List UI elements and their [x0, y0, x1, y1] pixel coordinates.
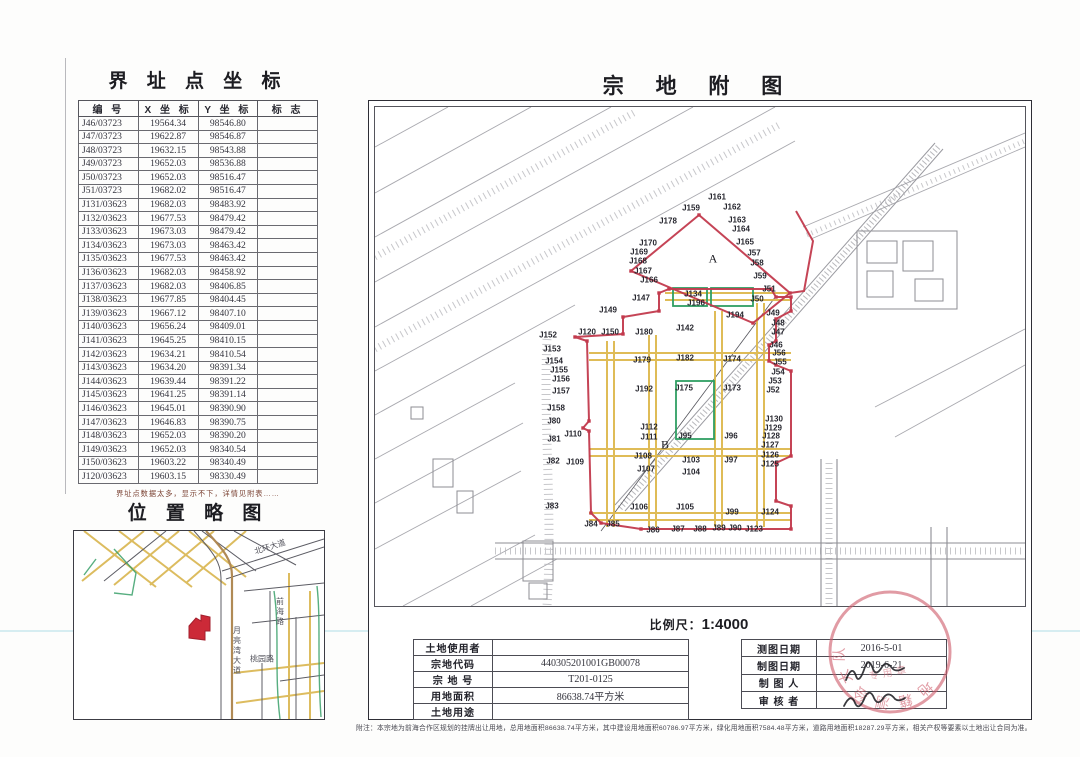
map-point-label: J80: [547, 417, 560, 426]
x-coord-cell: 19682.03: [138, 266, 198, 280]
y-coord-cell: 98536.88: [198, 157, 258, 171]
map-point-label: J84: [584, 520, 597, 529]
map-point-label: J55: [773, 358, 786, 367]
point-id-cell: J120/03623: [79, 470, 139, 484]
info-label: 宗 地 号: [414, 672, 493, 688]
coord-table-header-cell: Y 坐 标: [198, 101, 258, 117]
point-id-cell: J131/03623: [79, 198, 139, 212]
mark-cell: [258, 157, 318, 171]
map-point-label: J159: [682, 204, 700, 213]
map-point-label: J125: [761, 460, 779, 469]
point-id-cell: J132/03623: [79, 212, 139, 226]
table-row: J132/03623 19677.53 98479.42: [79, 212, 318, 226]
map-point-label: J53: [768, 377, 781, 386]
map-point-label: J49: [766, 309, 779, 318]
mark-cell: [258, 117, 318, 131]
meta-label: 制图日期: [742, 657, 817, 674]
scale-value: 1:4000: [702, 616, 749, 633]
y-coord-cell: 98390.90: [198, 402, 258, 416]
map-point-label: J85: [606, 520, 619, 529]
map-point-label: J153: [543, 345, 561, 354]
map-point-label: J81: [547, 435, 560, 444]
point-id-cell: J137/03623: [79, 280, 139, 294]
point-id-cell: J140/03623: [79, 320, 139, 334]
meta-value: 2019-6-21: [817, 657, 947, 674]
mark-cell: [258, 184, 318, 198]
table-row: J145/03623 19641.25 98391.14: [79, 388, 318, 402]
point-id-cell: J146/03623: [79, 402, 139, 416]
point-id-cell: J135/03623: [79, 252, 139, 266]
map-point-label: J50: [750, 295, 763, 304]
map-point-label: J106: [630, 503, 648, 512]
parcel-location-marker: [189, 615, 210, 640]
point-id-cell: J48/03723: [79, 144, 139, 158]
info-label: 土地使用者: [414, 640, 493, 656]
document-footnote: 附注：本宗地为前海合作区规划的挂牌出让用地，总用地面积86638.74平方米，其…: [356, 722, 1034, 732]
table-row: J47/03723 19622.87 98546.87: [79, 130, 318, 144]
y-coord-cell: 98483.92: [198, 198, 258, 212]
table-row: J147/03623 19646.83 98390.75: [79, 416, 318, 430]
parcel-map-frame: J159J161J162J163J164J165J57J58J59J51J50J…: [368, 100, 1032, 720]
table-row: 土地使用者: [414, 640, 689, 656]
point-id-cell: J147/03623: [79, 416, 139, 430]
map-point-label: J108: [634, 452, 652, 461]
table-row: J49/03723 19652.03 98536.88: [79, 157, 318, 171]
x-coord-cell: 19656.24: [138, 320, 198, 334]
road-label: 前海路: [275, 597, 286, 627]
map-point-label: J95: [678, 432, 691, 441]
y-coord-cell: 98410.15: [198, 334, 258, 348]
map-point-label: J83: [545, 502, 558, 511]
meta-label: 测图日期: [742, 640, 817, 657]
y-coord-cell: 98543.88: [198, 144, 258, 158]
y-coord-cell: 98404.45: [198, 293, 258, 307]
map-point-label: J173: [723, 384, 741, 393]
point-id-cell: J141/03623: [79, 334, 139, 348]
table-row: J141/03623 19645.25 98410.15: [79, 334, 318, 348]
map-point-label: J47: [771, 328, 784, 337]
table-row: J137/03623 19682.03 98406.85: [79, 280, 318, 294]
map-point-label: J54: [771, 368, 784, 377]
x-coord-cell: 19652.03: [138, 171, 198, 185]
table-row: J46/03723 19564.34 98546.80: [79, 117, 318, 131]
map-point-label: J179: [633, 356, 651, 365]
location-map-title: 位 置 略 图: [63, 498, 333, 525]
point-id-cell: J51/03723: [79, 184, 139, 198]
table-row: J131/03623 19682.03 98483.92: [79, 198, 318, 212]
mark-cell: [258, 307, 318, 321]
y-coord-cell: 98546.80: [198, 117, 258, 131]
mark-cell: [258, 443, 318, 457]
info-value: 440305201001GB00078: [493, 656, 689, 672]
map-point-label: J169: [630, 248, 648, 257]
mark-cell: [258, 198, 318, 212]
table-row: 宗 地 号 T201-0125: [414, 672, 689, 688]
map-point-label: J127: [761, 441, 779, 450]
table-row: J150/03623 19603.22 98340.49: [79, 456, 318, 470]
map-point-label: J96: [724, 432, 737, 441]
map-point-label: J82: [546, 457, 559, 466]
scan-page-edge: [65, 58, 66, 494]
mark-cell: [258, 375, 318, 389]
table-row: J143/03623 19634.20 98391.34: [79, 361, 318, 375]
map-point-label: J52: [766, 386, 779, 395]
x-coord-cell: 19634.21: [138, 348, 198, 362]
parcel-map-canvas: J159J161J162J163J164J165J57J58J59J51J50J…: [374, 106, 1026, 607]
map-point-label: J110: [564, 430, 581, 439]
point-id-cell: J150/03623: [79, 456, 139, 470]
x-coord-cell: 19564.34: [138, 117, 198, 131]
table-row: J134/03623 19673.03 98463.42: [79, 239, 318, 253]
y-coord-cell: 98340.49: [198, 456, 258, 470]
table-row: 测图日期 2016-5-01: [742, 640, 947, 657]
map-point-label: J86: [646, 526, 659, 535]
x-coord-cell: 19645.25: [138, 334, 198, 348]
map-point-label: J87: [671, 525, 684, 534]
map-point-label: A: [709, 252, 718, 267]
map-point-label: J192: [635, 385, 653, 394]
coord-table-title: 界 址 点 坐 标: [63, 66, 333, 93]
mark-cell: [258, 280, 318, 294]
table-row: J48/03723 19632.15 98543.88: [79, 144, 318, 158]
table-row: J140/03623 19656.24 98409.01: [79, 320, 318, 334]
table-row: J135/03623 19677.53 98463.42: [79, 252, 318, 266]
map-point-label: J175: [675, 384, 693, 393]
map-point-label: J59: [753, 272, 766, 281]
map-point-label: J130: [765, 415, 783, 424]
point-id-cell: J134/03623: [79, 239, 139, 253]
table-row: 宗地代码 440305201001GB00078: [414, 656, 689, 672]
point-id-cell: J148/03623: [79, 429, 139, 443]
point-id-cell: J145/03623: [79, 388, 139, 402]
point-id-cell: J136/03623: [79, 266, 139, 280]
coord-table-header-cell: 编 号: [79, 101, 139, 117]
point-id-cell: J49/03723: [79, 157, 139, 171]
mark-cell: [258, 171, 318, 185]
x-coord-cell: 19682.03: [138, 198, 198, 212]
map-point-label: J165: [736, 238, 754, 247]
mark-cell: [258, 266, 318, 280]
y-coord-cell: 98391.22: [198, 375, 258, 389]
map-point-label: J182: [676, 354, 694, 363]
mark-cell: [258, 470, 318, 484]
y-coord-cell: 98391.34: [198, 361, 258, 375]
y-coord-cell: 98391.14: [198, 388, 258, 402]
mark-cell: [258, 348, 318, 362]
mark-cell: [258, 252, 318, 266]
map-point-label: J180: [635, 328, 653, 337]
map-point-label: J134: [684, 290, 702, 299]
coord-table: 编 号X 坐 标Y 坐 标标 志 J46/03723 19564.34 9854…: [78, 100, 318, 484]
coord-table-header-cell: 标 志: [258, 101, 318, 117]
mark-cell: [258, 239, 318, 253]
map-point-label: J51: [762, 285, 775, 294]
map-point-label: J157: [552, 387, 570, 396]
map-point-label: J56: [772, 349, 785, 358]
table-row: 土地用途: [414, 704, 689, 720]
map-meta-rows: 测图日期 2016-5-01 制图日期 2019-6-21 制 图 人: [742, 640, 947, 709]
map-point-label: J128: [762, 432, 780, 441]
y-coord-cell: 98409.01: [198, 320, 258, 334]
y-coord-cell: 98516.47: [198, 184, 258, 198]
location-map: 北环大道月亮湾大道前海路桃园路: [73, 530, 325, 720]
map-point-label: J161: [708, 193, 726, 202]
map-point-label: J97: [724, 456, 737, 465]
y-coord-cell: 98463.42: [198, 239, 258, 253]
map-point-label: J99: [725, 508, 738, 517]
x-coord-cell: 19682.03: [138, 280, 198, 294]
map-point-label: J152: [539, 331, 557, 340]
mark-cell: [258, 456, 318, 470]
map-point-label: J123: [745, 525, 763, 534]
mark-cell: [258, 361, 318, 375]
map-point-label: J112: [640, 423, 657, 432]
table-row: J149/03623 19652.03 98340.54: [79, 443, 318, 457]
x-coord-cell: 19677.53: [138, 212, 198, 226]
meta-label: 审 核 者: [742, 691, 817, 708]
map-point-label: J124: [761, 508, 779, 517]
info-value: [493, 704, 689, 720]
road-label: 桃园路: [250, 654, 274, 665]
coord-table-header-row: 编 号X 坐 标Y 坐 标标 志: [79, 101, 318, 117]
info-value: 86638.74平方米: [493, 688, 689, 704]
mark-cell: [258, 388, 318, 402]
x-coord-cell: 19682.02: [138, 184, 198, 198]
table-row: 审 核 者: [742, 691, 947, 708]
table-row: 制图日期 2019-6-21: [742, 657, 947, 674]
map-meta-table: 测图日期 2016-5-01 制图日期 2019-6-21 制 图 人: [741, 639, 947, 709]
meta-value: [817, 674, 947, 691]
scanned-parcel-document: 界 址 点 坐 标 编 号X 坐 标Y 坐 标标 志 J46/03723 195…: [0, 0, 1080, 757]
table-row: J138/03623 19677.85 98404.45: [79, 293, 318, 307]
scale-label: 比例尺：: [650, 618, 702, 632]
map-point-label: J158: [547, 404, 565, 413]
table-row: J51/03723 19682.02 98516.47: [79, 184, 318, 198]
mark-cell: [258, 416, 318, 430]
x-coord-cell: 19652.03: [138, 157, 198, 171]
table-row: J120/03623 19603.15 98330.49: [79, 470, 318, 484]
x-coord-cell: 19652.03: [138, 443, 198, 457]
map-point-label: J196: [687, 299, 705, 308]
map-point-label: J105: [676, 503, 694, 512]
mark-cell: [258, 144, 318, 158]
point-id-cell: J144/03623: [79, 375, 139, 389]
map-point-label: J126: [761, 451, 779, 460]
table-row: J144/03623 19639.44 98391.22: [79, 375, 318, 389]
x-coord-cell: 19667.12: [138, 307, 198, 321]
x-coord-cell: 19622.87: [138, 130, 198, 144]
parcel-info-table: 土地使用者 宗地代码 440305201001GB00078 宗 地 号 T20…: [413, 639, 689, 720]
map-point-label: J103: [682, 456, 700, 465]
mark-cell: [258, 402, 318, 416]
y-coord-cell: 98546.87: [198, 130, 258, 144]
map-point-label: J120: [578, 328, 596, 337]
meta-label: 制 图 人: [742, 674, 817, 691]
x-coord-cell: 19639.44: [138, 375, 198, 389]
map-point-label: J90: [728, 524, 741, 533]
y-coord-cell: 98516.47: [198, 171, 258, 185]
meta-value: 2016-5-01: [817, 640, 947, 657]
map-point-label: J164: [732, 225, 750, 234]
point-id-cell: J133/03623: [79, 225, 139, 239]
map-point-label: J149: [599, 306, 617, 315]
point-id-cell: J149/03623: [79, 443, 139, 457]
y-coord-cell: 98340.54: [198, 443, 258, 457]
y-coord-cell: 98390.75: [198, 416, 258, 430]
table-row: J146/03623 19645.01 98390.90: [79, 402, 318, 416]
info-label: 土地用途: [414, 704, 493, 720]
map-point-label: J58: [750, 259, 763, 268]
meta-value: [817, 691, 947, 708]
point-id-cell: J47/03723: [79, 130, 139, 144]
map-point-label: J107: [637, 465, 655, 474]
map-point-label: J147: [632, 294, 650, 303]
table-row: 制 图 人: [742, 674, 947, 691]
point-id-cell: J50/03723: [79, 171, 139, 185]
mark-cell: [258, 212, 318, 226]
y-coord-cell: 98407.10: [198, 307, 258, 321]
y-coord-cell: 98458.92: [198, 266, 258, 280]
x-coord-cell: 19646.83: [138, 416, 198, 430]
mark-cell: [258, 320, 318, 334]
y-coord-cell: 98410.54: [198, 348, 258, 362]
map-point-label: J170: [639, 239, 657, 248]
map-point-label: J154: [545, 357, 563, 366]
table-row: J133/03623 19673.03 98479.42: [79, 225, 318, 239]
map-point-label: J166: [640, 276, 658, 285]
x-coord-cell: 19603.15: [138, 470, 198, 484]
x-coord-cell: 19677.53: [138, 252, 198, 266]
y-coord-cell: 98390.20: [198, 429, 258, 443]
map-point-label: J163: [728, 216, 746, 225]
x-coord-cell: 19645.01: [138, 402, 198, 416]
parcel-info-rows: 土地使用者 宗地代码 440305201001GB00078 宗 地 号 T20…: [414, 640, 689, 720]
point-id-cell: J46/03723: [79, 117, 139, 131]
map-point-label: B: [661, 438, 669, 453]
mark-cell: [258, 334, 318, 348]
map-point-label: J88: [693, 525, 706, 534]
scale-bar: 比例尺：1:4000: [584, 616, 814, 634]
table-row: J136/03623 19682.03 98458.92: [79, 266, 318, 280]
y-coord-cell: 98479.42: [198, 225, 258, 239]
map-point-label: J155: [550, 366, 568, 375]
point-id-cell: J138/03623: [79, 293, 139, 307]
info-label: 宗地代码: [414, 656, 493, 672]
table-row: J148/03623 19652.03 98390.20: [79, 429, 318, 443]
map-point-label: J142: [676, 324, 694, 333]
map-point-label: J150: [601, 328, 619, 337]
table-row: 用地面积 86638.74平方米: [414, 688, 689, 704]
info-value: [493, 640, 689, 656]
mark-cell: [258, 293, 318, 307]
map-point-label: J194: [726, 311, 744, 320]
map-point-label: J174: [723, 355, 741, 364]
x-coord-cell: 19603.22: [138, 456, 198, 470]
table-row: J139/03623 19667.12 98407.10: [79, 307, 318, 321]
map-point-label: J178: [659, 217, 677, 226]
map-point-label: J156: [552, 375, 570, 384]
x-coord-cell: 19677.85: [138, 293, 198, 307]
map-point-label: J109: [566, 458, 584, 467]
x-coord-cell: 19641.25: [138, 388, 198, 402]
point-id-cell: J143/03623: [79, 361, 139, 375]
mark-cell: [258, 130, 318, 144]
map-point-label: J167: [634, 267, 652, 276]
table-row: J50/03723 19652.03 98516.47: [79, 171, 318, 185]
mark-cell: [258, 225, 318, 239]
info-label: 用地面积: [414, 688, 493, 704]
x-coord-cell: 19632.15: [138, 144, 198, 158]
map-point-label: J89: [712, 524, 725, 533]
point-id-cell: J142/03623: [79, 348, 139, 362]
road-label: 月亮湾大道: [232, 626, 243, 676]
x-coord-cell: 19634.20: [138, 361, 198, 375]
y-coord-cell: 98463.42: [198, 252, 258, 266]
x-coord-cell: 19673.03: [138, 225, 198, 239]
map-point-label: J48: [771, 319, 784, 328]
parcel-map-title: 宗 地 附 图: [368, 70, 1030, 100]
table-row: J142/03623 19634.21 98410.54: [79, 348, 318, 362]
info-value: T201-0125: [493, 672, 689, 688]
coord-table-header-cell: X 坐 标: [138, 101, 198, 117]
map-point-label: J104: [682, 468, 700, 477]
x-coord-cell: 19673.03: [138, 239, 198, 253]
map-point-label: J168: [629, 257, 647, 266]
x-coord-cell: 19652.03: [138, 429, 198, 443]
map-point-label: J57: [747, 249, 760, 258]
map-point-label: J111: [641, 433, 658, 442]
mark-cell: [258, 429, 318, 443]
location-map-drawing: [74, 531, 324, 719]
coord-table-body: J46/03723 19564.34 98546.80 J47/03723 19…: [79, 117, 318, 484]
map-point-label: J162: [723, 203, 741, 212]
y-coord-cell: 98406.85: [198, 280, 258, 294]
y-coord-cell: 98330.49: [198, 470, 258, 484]
point-id-cell: J139/03623: [79, 307, 139, 321]
y-coord-cell: 98479.42: [198, 212, 258, 226]
